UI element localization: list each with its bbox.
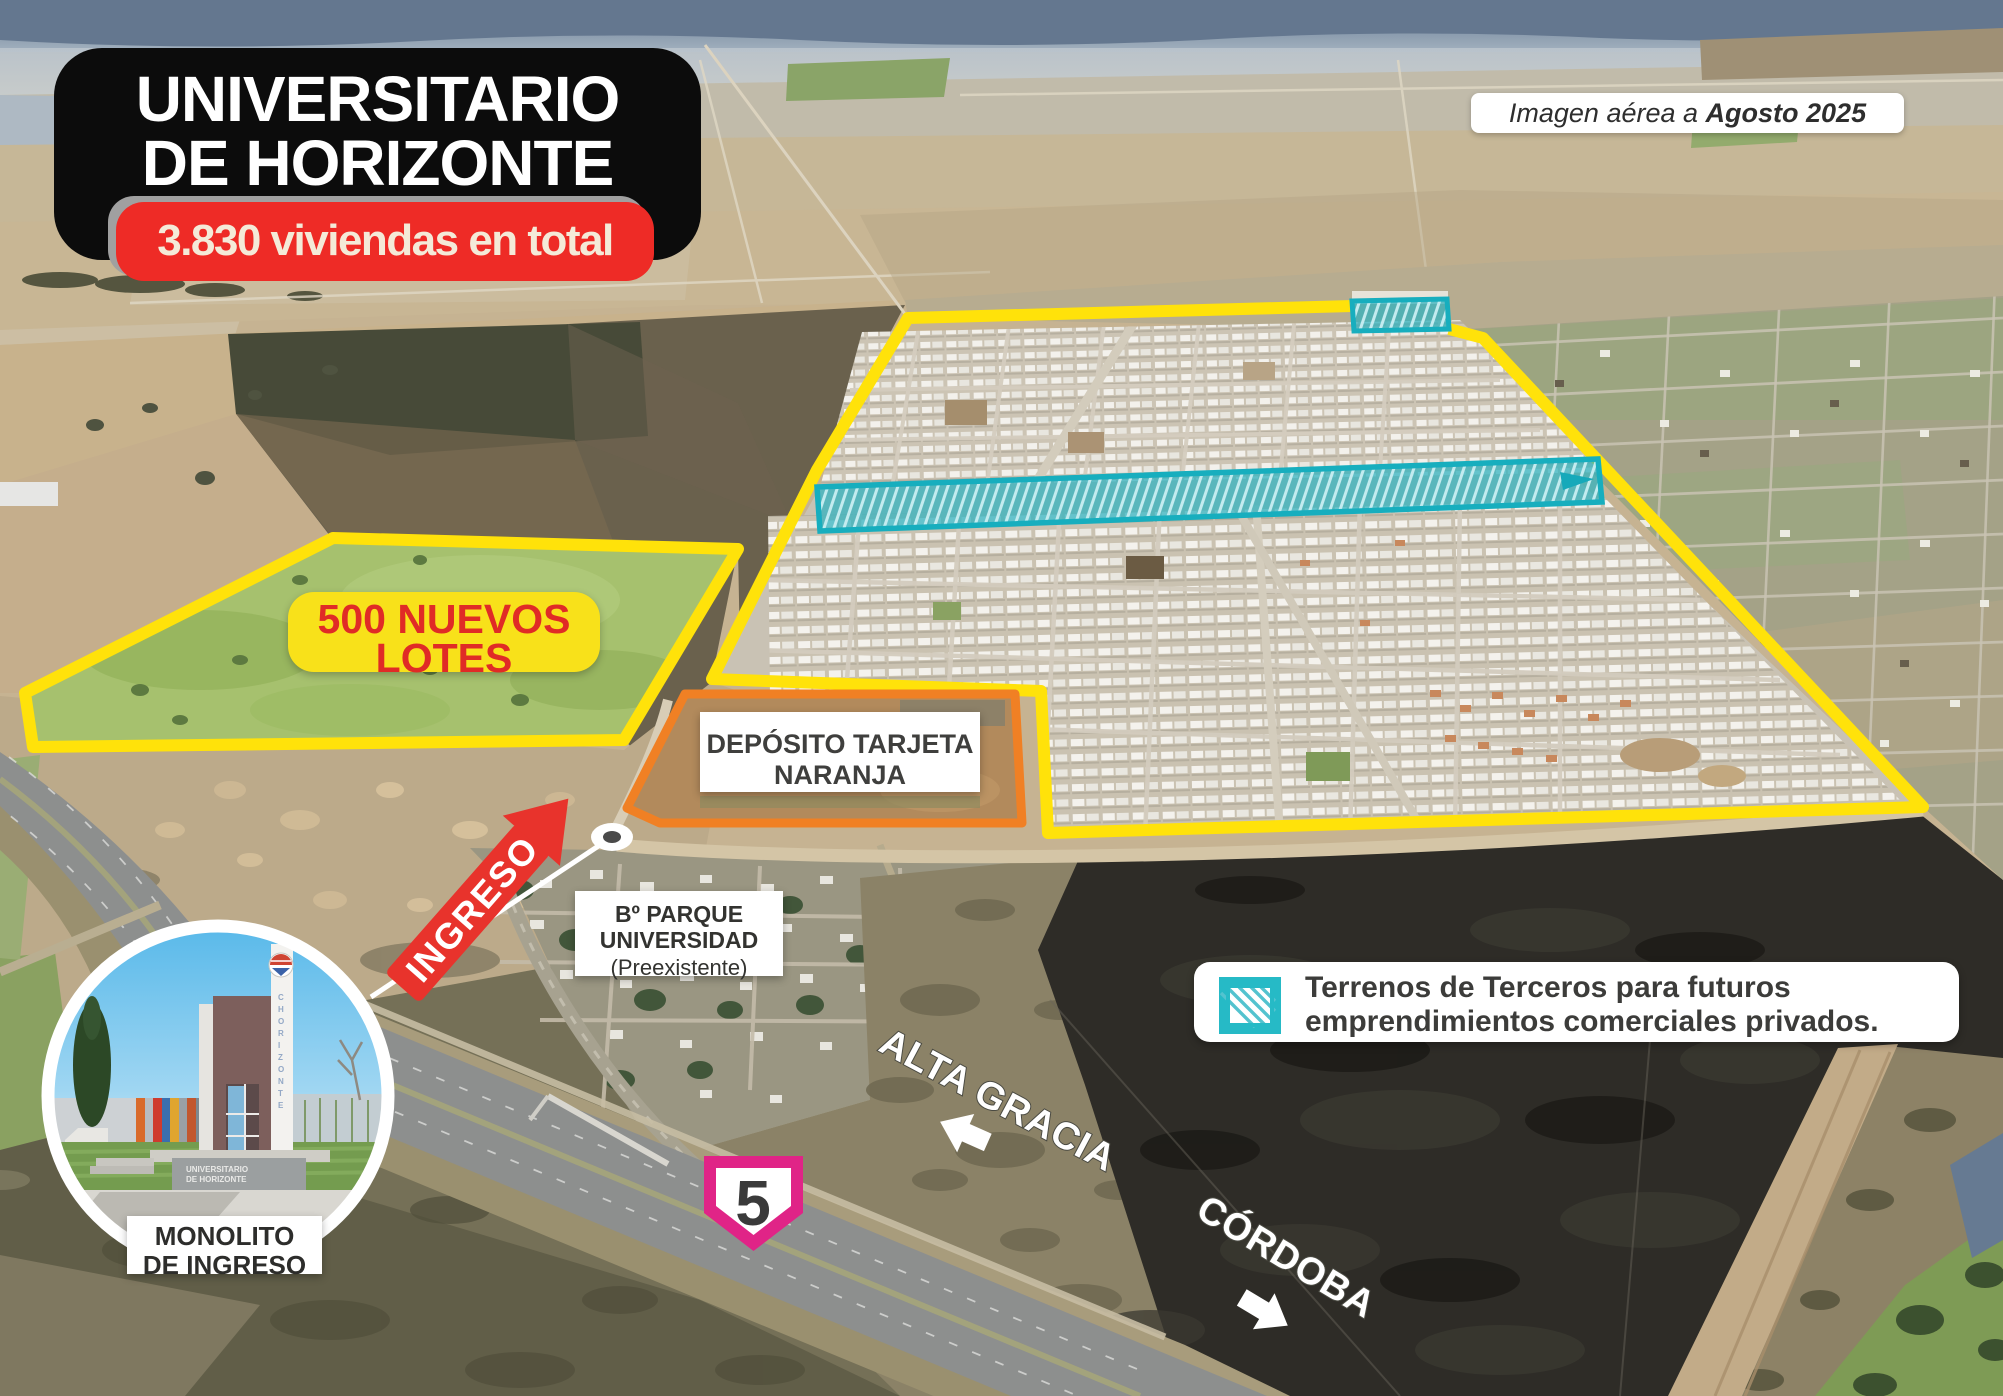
svg-text:H: H bbox=[278, 1005, 284, 1014]
svg-text:O: O bbox=[278, 1065, 284, 1074]
svg-text:T: T bbox=[278, 1089, 283, 1098]
svg-text:C: C bbox=[278, 993, 284, 1002]
svg-text:I: I bbox=[278, 1041, 280, 1050]
svg-text:DE HORIZONTE: DE HORIZONTE bbox=[186, 1175, 247, 1184]
svg-text:Z: Z bbox=[278, 1053, 283, 1062]
svg-text:5: 5 bbox=[735, 1167, 771, 1239]
svg-text:UNIVERSITARIO: UNIVERSITARIO bbox=[186, 1165, 248, 1174]
svg-text:O: O bbox=[278, 1017, 284, 1026]
svg-text:E: E bbox=[278, 1101, 284, 1110]
svg-text:N: N bbox=[278, 1077, 284, 1086]
svg-text:R: R bbox=[278, 1029, 284, 1038]
